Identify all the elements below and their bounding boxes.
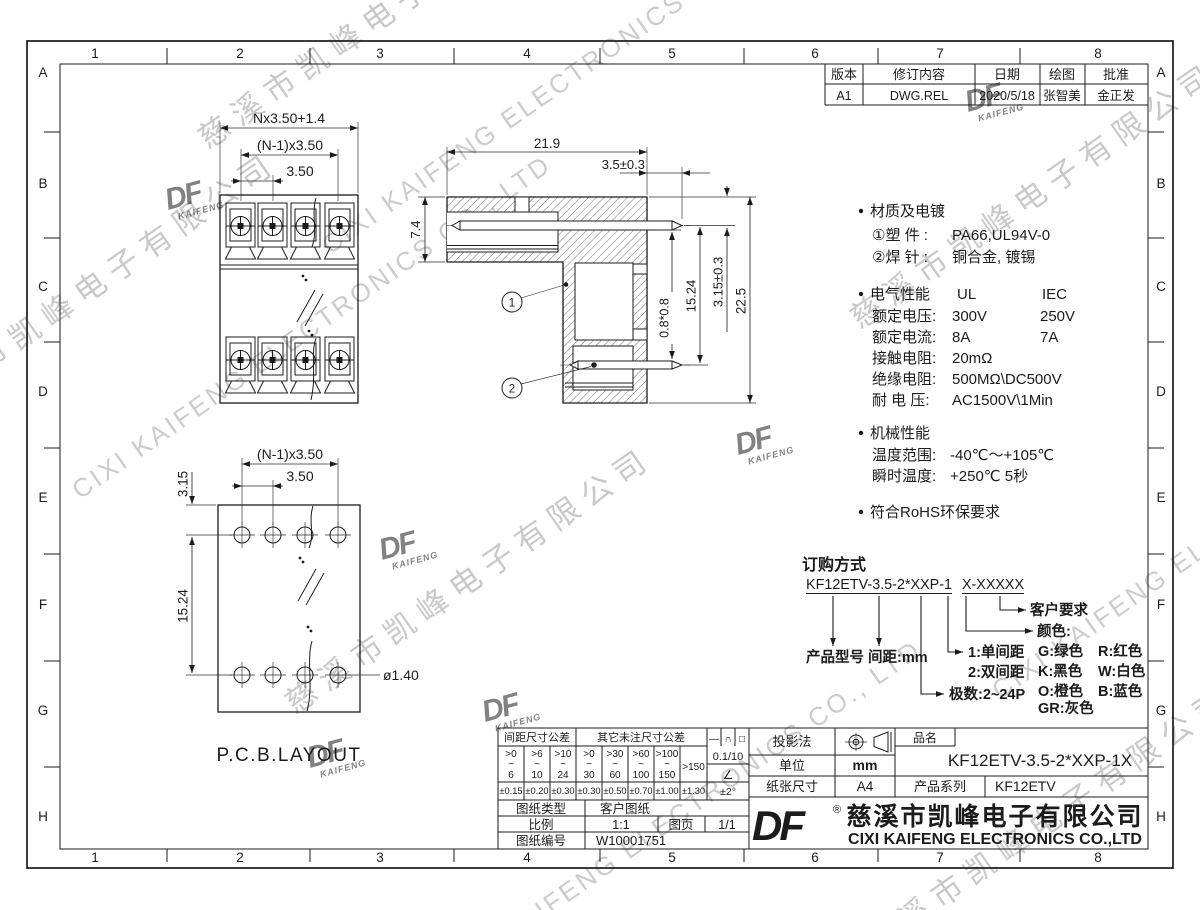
grid-row-label: G [38,703,49,718]
tol-pitch-header: 间距尺寸公差 [504,730,570,744]
square-symbol: □ [739,734,745,745]
tol-range: 30 [583,770,595,781]
grid-row-label: H [38,809,48,824]
grid-col-label: 7 [936,850,944,865]
spec-label: ①塑 件 : [872,227,928,244]
spec-value: 8A [952,329,970,346]
ordering-part-number: KF12ETV-3.5-2*XXP-1 [806,576,952,593]
tol-value: ±0.50 [603,786,626,796]
spec-value: 铜合金, 镀锡 [952,249,1035,266]
spec-mechanical-title: 机械性能 [870,425,930,442]
drawing-number-value: W10001751 [596,833,666,848]
bullet [859,209,863,213]
ordering-label-customer: 客户要求 [1029,601,1088,619]
tol-range: 150 [659,770,676,781]
watermark-text: 慈溪市凯峰电子有限公司 [859,680,1200,910]
grid-row-label: D [38,384,48,399]
revision-date: 2020/5/18 [979,89,1035,103]
dim-front-span: (N-1)x3.50 [257,137,323,153]
grid-col-label: 1 [91,46,99,61]
tol-tilde: ~ [534,759,540,770]
dim-front-overall: Nx3.50+1.4 [253,110,325,126]
page-label: 图页 [668,818,693,832]
dim-pcb-row-offset: 3.15 [176,471,191,497]
balloon-2-number: 2 [509,384,515,396]
cad-drawing: DF KAIFENG 慈溪市凯峰电子有限公司 CIXI KAIFENG ELEC… [0,0,1200,910]
tol-flatness: 0.1/10 [713,751,744,763]
ordering-part-number-suffix: X-XXXXX [962,576,1024,593]
drawing-type-value: 客户图纸 [600,801,651,816]
pcb-caption: P.C.B.LAYOUT [216,745,361,766]
tol-other-header: 其它未注尺寸公差 [597,730,685,744]
tol-range: 6 [508,770,514,781]
spec-label: 耐 电 压: [872,392,930,409]
dim-pcb-row-span: 15.24 [176,589,191,623]
spec-label: 接触电阻: [872,350,936,367]
spec-value: +250℃ 5秒 [950,468,1028,485]
revision-header: 版本 [831,67,857,82]
tol-range: 60 [609,770,621,781]
balloon-1: 1 [502,282,568,312]
ordering-label-model: 产品型号 [806,648,864,666]
tol-value: ±0.15 [499,786,522,796]
spec-label: 瞬时温度: [872,468,936,485]
grid-row-label: A [1156,65,1165,80]
tol-angle-value: ±2° [720,786,736,798]
spec-rohs: 符合RoHS环保要求 [870,504,1000,521]
tol-value: ±1.30 [682,786,705,796]
dim-section-width: 21.9 [534,136,560,151]
dim-pin-offset: 3.15±0.3 [711,257,726,308]
grid-col-label: 5 [668,850,676,865]
grid-col-label: 8 [1094,850,1102,865]
paper-size-label: 纸张尺寸 [766,779,818,794]
straightness-symbol: — [709,734,719,745]
series-value: KF12ETV [995,778,1056,794]
tol-value: ±0.20 [525,786,548,796]
ordering-color-option: R:红色 [1098,642,1143,660]
tol-tilde: ~ [664,759,670,770]
page-value: 1/1 [718,818,735,832]
ordering-label-poles: 极数:2~24P [949,685,1025,703]
bullet [859,292,863,296]
revision-header: 批准 [1103,67,1129,82]
grid-row-label: E [1156,490,1165,505]
company-block: DF ® 慈溪市凯峰电子有限公司 CIXI KAIFENG ELECTRONIC… [752,802,1144,849]
grid-col-label: 8 [1094,46,1102,61]
grid-col-label: 3 [376,850,384,865]
tol-value: ±0.30 [577,786,600,796]
grid-col-label: 5 [668,46,676,61]
series-label: 产品系列 [914,779,966,794]
grid-row-label: B [38,176,47,191]
title-block: 间距尺寸公差 其它未注尺寸公差 >0 ~ 6 >6 ~ 10 >10 ~ 24 … [498,728,1148,849]
grid-row-label: B [1156,176,1165,191]
grid-col-label: 6 [811,850,819,865]
revision-drawn-by: 张智美 [1043,88,1081,103]
tol-tilde: ~ [560,759,566,770]
ordering-label-single: 1:单间距 [968,643,1025,661]
revision-header: 日期 [994,67,1020,82]
grid-row-label: D [1156,384,1166,399]
tol-range: 24 [557,770,569,781]
tol-range-over: >150 [682,762,705,773]
dim-pcb-hole-dia: ø1.40 [383,667,419,683]
grid-row-label: F [1157,597,1165,612]
grid-row-label: C [38,279,48,294]
grid-row-label: H [1156,809,1166,824]
grid-col-label: 7 [936,46,944,61]
spec-col-iec: IEC [1042,286,1067,303]
grid-col-label: 3 [376,46,384,61]
grid-col-label: 1 [91,850,99,865]
spec-label: 温度范围: [872,447,936,464]
grid-col-label: 4 [523,850,531,865]
spec-value: AC1500V\1Min [952,392,1053,409]
projection-symbol-icon [845,732,891,752]
ordering-color-option: O:橙色 [1038,682,1084,700]
grid-row-label: G [1156,703,1167,718]
dim-pin-extension-top: 3.5±0.3 [602,157,645,172]
spec-col-ul: UL [957,286,976,303]
revision-content: DWG.REL [890,89,948,103]
tol-tilde: ~ [508,759,514,770]
product-name-value: KF12ETV-3.5-2*XXP-1X [948,751,1132,770]
dim-pcb-pitch: 3.50 [286,468,313,484]
break-lines [297,198,323,400]
spec-value: PA66,UL94V-0 [952,227,1050,244]
spec-value: 500MΩ\DC500V [952,371,1062,388]
revision-approved-by: 金正发 [1097,88,1135,103]
spec-electrical-title: 电气性能 [870,286,930,303]
unit-value: mm [853,757,878,773]
product-name-label: 品名 [913,730,937,745]
scale-value: 1:1 [612,818,629,832]
bullet [859,510,863,514]
ordering-title: 订购方式 [802,555,866,574]
tol-value: ±1.00 [655,786,678,796]
ordering-color-option: G:绿色 [1038,642,1084,660]
dim-total-height: 22.5 [734,288,749,314]
bottom-pin [560,361,690,369]
registered-mark: ® [833,804,841,816]
spec-label: ②焊 针 : [872,249,928,266]
spec-label: 额定电压: [872,308,936,325]
spec-label: 绝缘电阻: [872,371,936,388]
paper-size-value: A4 [857,779,874,794]
ordering-color-option: GR:灰色 [1038,699,1094,717]
grid-col-label: 2 [236,46,244,61]
unit-label: 单位 [779,758,805,773]
grid-col-label: 6 [811,46,819,61]
tol-tilde: ~ [612,759,618,770]
dim-pcb-span: (N-1)x3.50 [257,446,323,462]
dim-pin-square: 0.8*0.8 [658,298,672,338]
revision-header: 绘图 [1049,67,1075,82]
revision-header: 修订内容 [893,67,945,82]
drawing-number-label: 图纸编号 [516,833,566,848]
grid-row-label: F [39,597,47,612]
top-pin [446,221,690,230]
ordering-color-option: W:白色 [1098,662,1146,680]
ordering-label-color: 颜色: [1037,622,1071,640]
ordering-color-option: K:黑色 [1038,662,1083,680]
section-view: 1 2 [408,136,756,403]
tol-tilde: ~ [586,759,592,770]
angle-symbol: ∠ [723,768,734,782]
revision-version: A1 [836,89,851,103]
tol-range: 100 [633,770,650,781]
grid-row-label: C [1156,279,1166,294]
grid-col-label: 2 [236,850,244,865]
balloon-1-number: 1 [509,298,515,310]
tol-range: 10 [531,770,543,781]
spec-value: 20mΩ [952,350,992,367]
company-name-en: CIXI KAIFENG ELECTRONICS CO.,LTD [848,831,1142,848]
spec-material-title: 材质及电镀 [870,203,945,220]
drawing-sheet: DF KAIFENG 慈溪市凯峰电子有限公司 CIXI KAIFENG ELEC… [0,0,1200,910]
spec-value: 300V [952,308,987,325]
ordering-label-pitch: 间距:mm [868,648,928,666]
grid-row-label: A [38,65,47,80]
spec-value: 7A [1040,329,1058,346]
dim-pin-span: 15.24 [684,280,699,313]
watermark-text: 慈溪市凯峰电子有限公司 [279,440,660,721]
ordering-label-double: 2:双间距 [968,663,1025,681]
grid-row-label: E [38,490,47,505]
specs-block: 材质及电镀 ①塑 件 : PA66,UL94V-0 ②焊 针 : 铜合金, 镀锡… [859,203,1075,521]
company-name-cn: 慈溪市凯峰电子有限公司 [846,802,1143,831]
tol-value: ±0.30 [551,786,574,796]
tol-tilde: ~ [638,759,644,770]
revision-table: 版本 修订内容 日期 绘图 批准 A1 DWG.REL 2020/5/18 张智… [825,64,1148,105]
spec-label: 额定电流: [872,329,936,346]
dim-front-pitch: 3.50 [286,163,313,179]
dim-top-height: 7.4 [408,220,423,238]
scale-label: 比例 [528,818,553,832]
projection-label: 投影法 [772,734,811,749]
arc-symbol: ∩ [724,734,731,745]
drawing-type-label: 图纸类型 [516,802,566,816]
grid-col-label: 4 [523,46,531,61]
bullet [859,431,863,435]
spec-value: -40℃～+105℃ [950,447,1054,464]
ordering-color-option: B:蓝色 [1098,682,1143,700]
company-logo: DF [752,802,806,849]
spec-value: 250V [1040,308,1075,325]
tol-value: ±0.70 [629,786,652,796]
